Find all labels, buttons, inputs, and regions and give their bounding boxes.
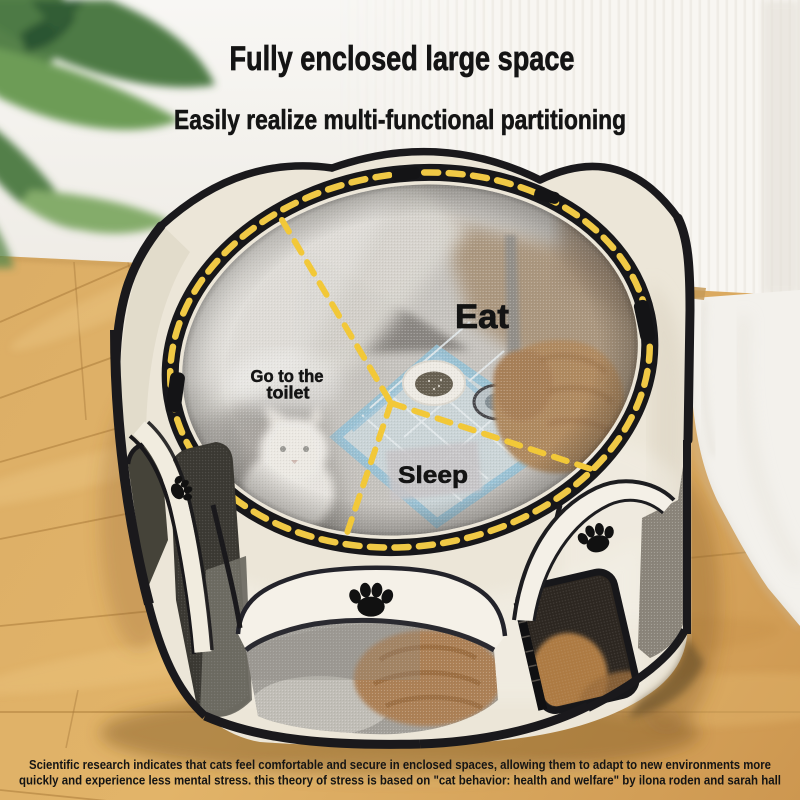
svg-text:Easily realize multi-functiona: Easily realize multi-functional partitio… bbox=[174, 104, 626, 135]
svg-text:quickly and experience less me: quickly and experience less mental stres… bbox=[19, 774, 781, 788]
svg-text:toilet: toilet bbox=[267, 383, 310, 403]
svg-text:Fully enclosed large space: Fully enclosed large space bbox=[230, 40, 575, 78]
svg-text:Sleep: Sleep bbox=[398, 462, 468, 489]
svg-text:Eat: Eat bbox=[455, 298, 509, 336]
svg-text:Scientific research indicates: Scientific research indicates that cats … bbox=[29, 758, 771, 772]
